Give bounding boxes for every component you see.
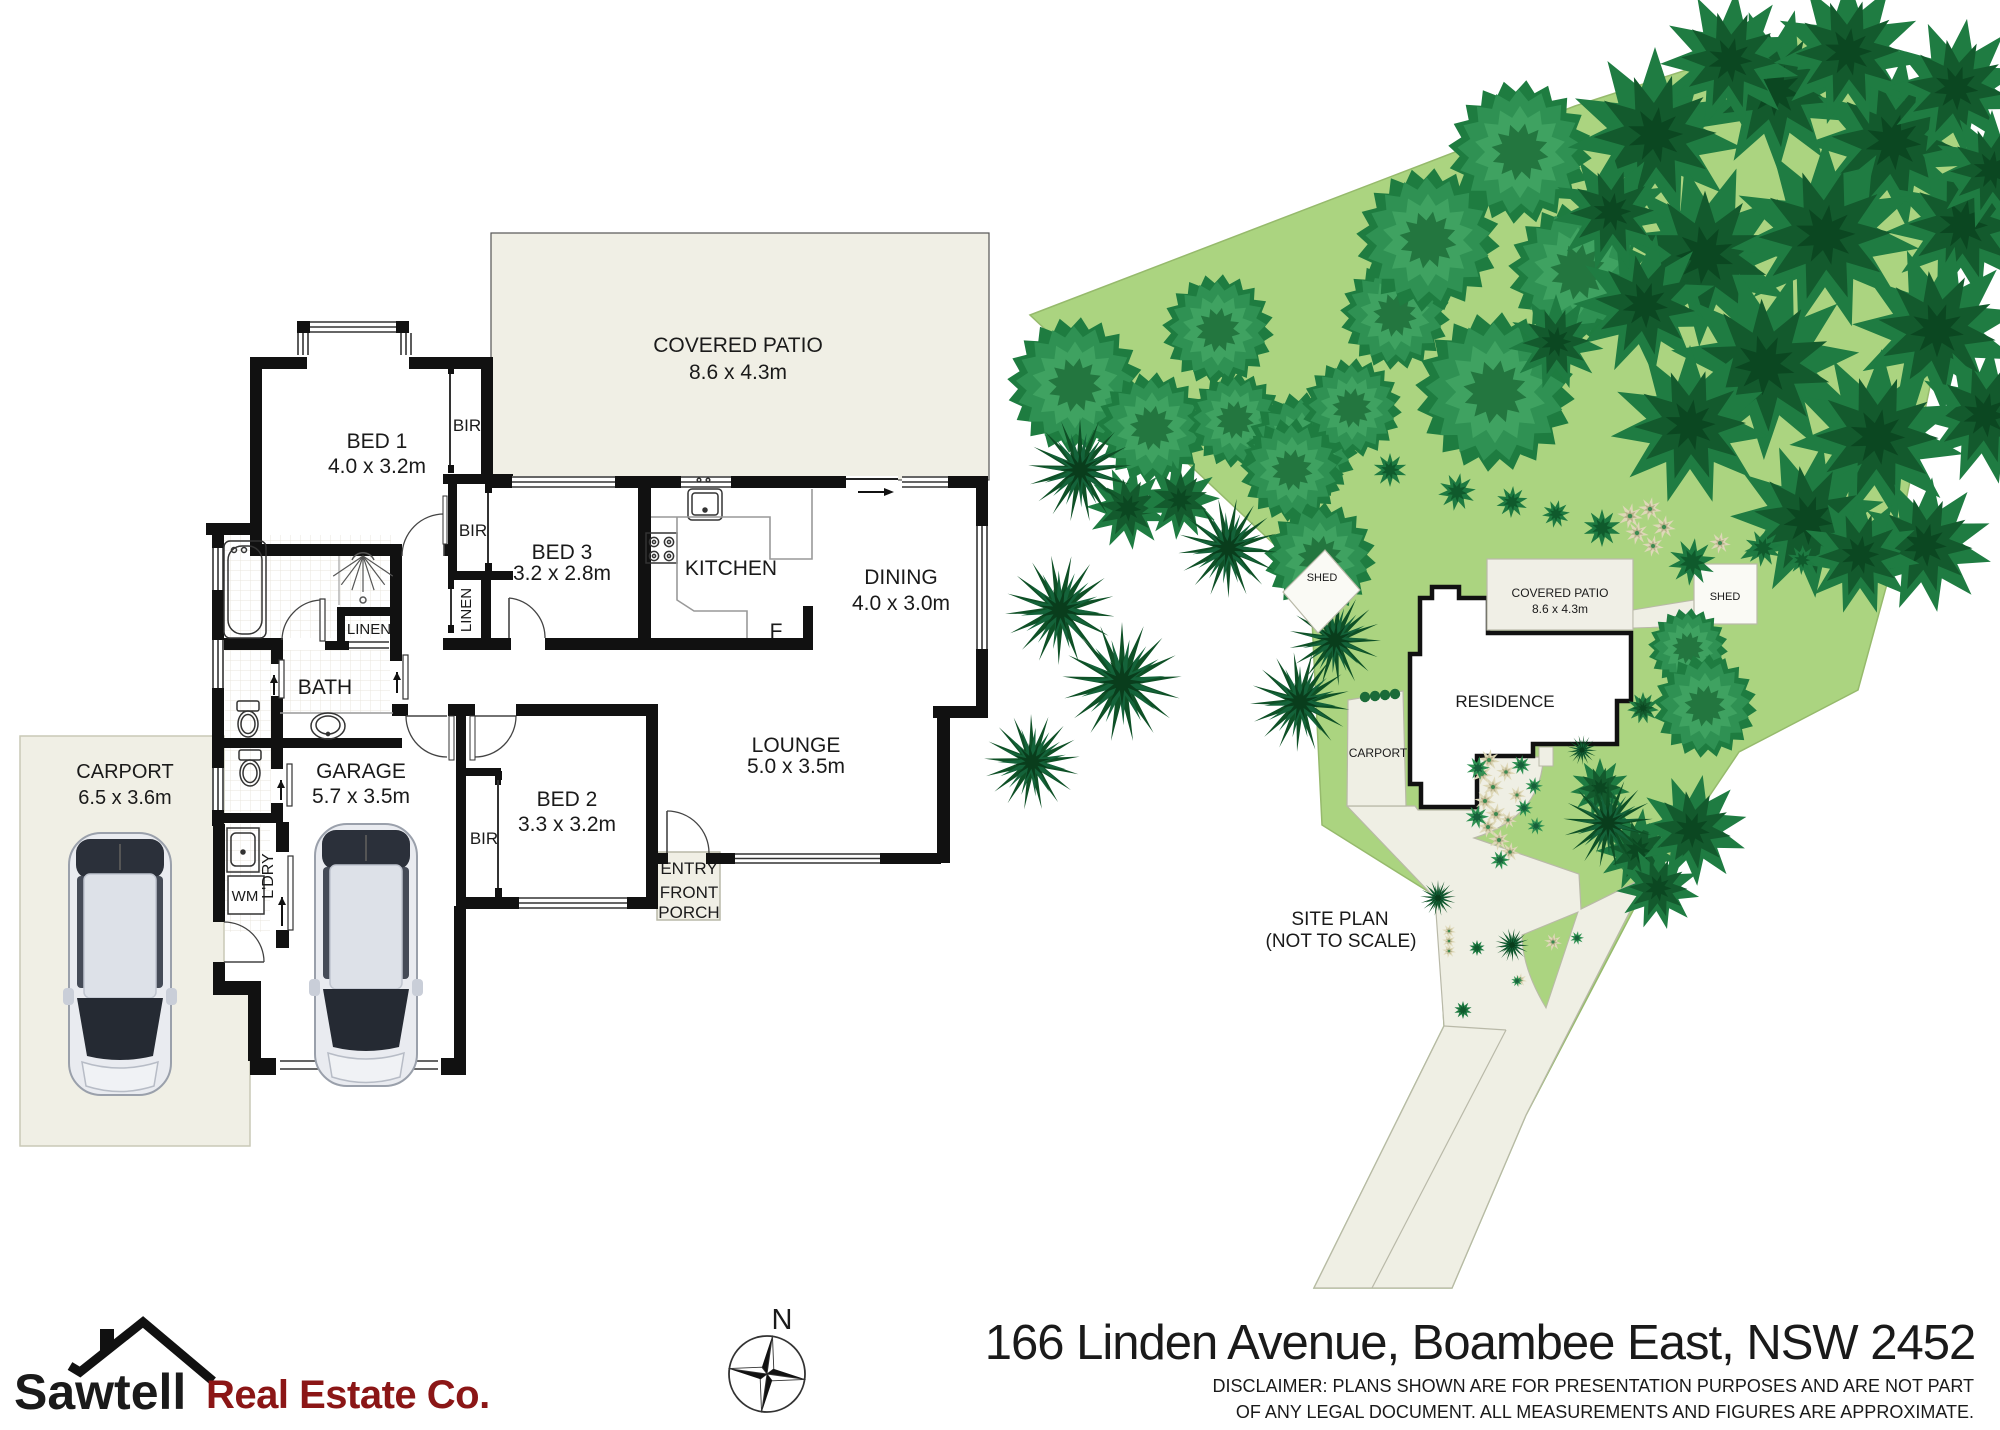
svg-text:DISCLAIMER: PLANS SHOWN ARE FO: DISCLAIMER: PLANS SHOWN ARE FOR PRESENTA…	[1213, 1376, 1974, 1396]
svg-text:RESIDENCE: RESIDENCE	[1455, 692, 1554, 711]
svg-text:LOUNGE: LOUNGE	[752, 734, 841, 757]
svg-text:Real Estate Co.: Real Estate Co.	[206, 1373, 490, 1417]
svg-text:OF ANY LEGAL DOCUMENT. ALL MEA: OF ANY LEGAL DOCUMENT. ALL MEASUREMENTS …	[1236, 1402, 1974, 1422]
svg-text:BED 1: BED 1	[347, 430, 408, 453]
svg-text:COVERED PATIO: COVERED PATIO	[653, 334, 823, 357]
svg-text:3.3 x 3.2m: 3.3 x 3.2m	[518, 813, 616, 836]
svg-text:BIR: BIR	[459, 521, 487, 540]
svg-text:KITCHEN: KITCHEN	[685, 557, 777, 580]
svg-text:CARPORT: CARPORT	[1349, 746, 1408, 760]
svg-text:CARPORT: CARPORT	[76, 761, 173, 783]
svg-text:8.6 x 4.3m: 8.6 x 4.3m	[1532, 602, 1588, 616]
svg-text:F: F	[770, 620, 783, 643]
svg-text:4.0 x 3.0m: 4.0 x 3.0m	[852, 592, 950, 615]
svg-text:SHED: SHED	[1710, 591, 1741, 603]
svg-text:BED 2: BED 2	[537, 788, 598, 811]
svg-text:BATH: BATH	[298, 676, 352, 699]
svg-text:4.0 x 3.2m: 4.0 x 3.2m	[328, 455, 426, 478]
svg-text:LINEN: LINEN	[347, 621, 391, 638]
svg-text:166 Linden Avenue, Boambee Eas: 166 Linden Avenue, Boambee East, NSW 245…	[985, 1316, 1976, 1370]
svg-text:N: N	[772, 1304, 793, 1336]
svg-text:3.2 x 2.8m: 3.2 x 2.8m	[513, 562, 611, 585]
svg-text:SHED: SHED	[1307, 572, 1338, 584]
svg-text:(NOT TO SCALE): (NOT TO SCALE)	[1266, 931, 1417, 952]
svg-text:BIR: BIR	[453, 416, 481, 435]
svg-text:GARAGE: GARAGE	[316, 760, 406, 783]
svg-text:5.7 x 3.5m: 5.7 x 3.5m	[312, 785, 410, 808]
svg-text:DINING: DINING	[864, 566, 938, 589]
svg-text:BIR: BIR	[470, 829, 498, 848]
svg-text:BED 3: BED 3	[532, 541, 593, 564]
svg-text:8.6 x 4.3m: 8.6 x 4.3m	[689, 361, 787, 384]
svg-text:5.0 x 3.5m: 5.0 x 3.5m	[747, 755, 845, 778]
svg-text:LINEN: LINEN	[458, 588, 475, 632]
svg-text:SITE PLAN: SITE PLAN	[1291, 909, 1388, 930]
svg-text:FRONT: FRONT	[660, 883, 719, 902]
svg-text:L'DRY: L'DRY	[260, 853, 277, 899]
svg-text:COVERED PATIO: COVERED PATIO	[1512, 586, 1609, 600]
svg-text:PORCH: PORCH	[658, 903, 719, 922]
svg-text:Sawtell: Sawtell	[14, 1364, 186, 1420]
svg-text:WM: WM	[232, 888, 259, 905]
svg-text:6.5 x 3.6m: 6.5 x 3.6m	[78, 787, 171, 809]
